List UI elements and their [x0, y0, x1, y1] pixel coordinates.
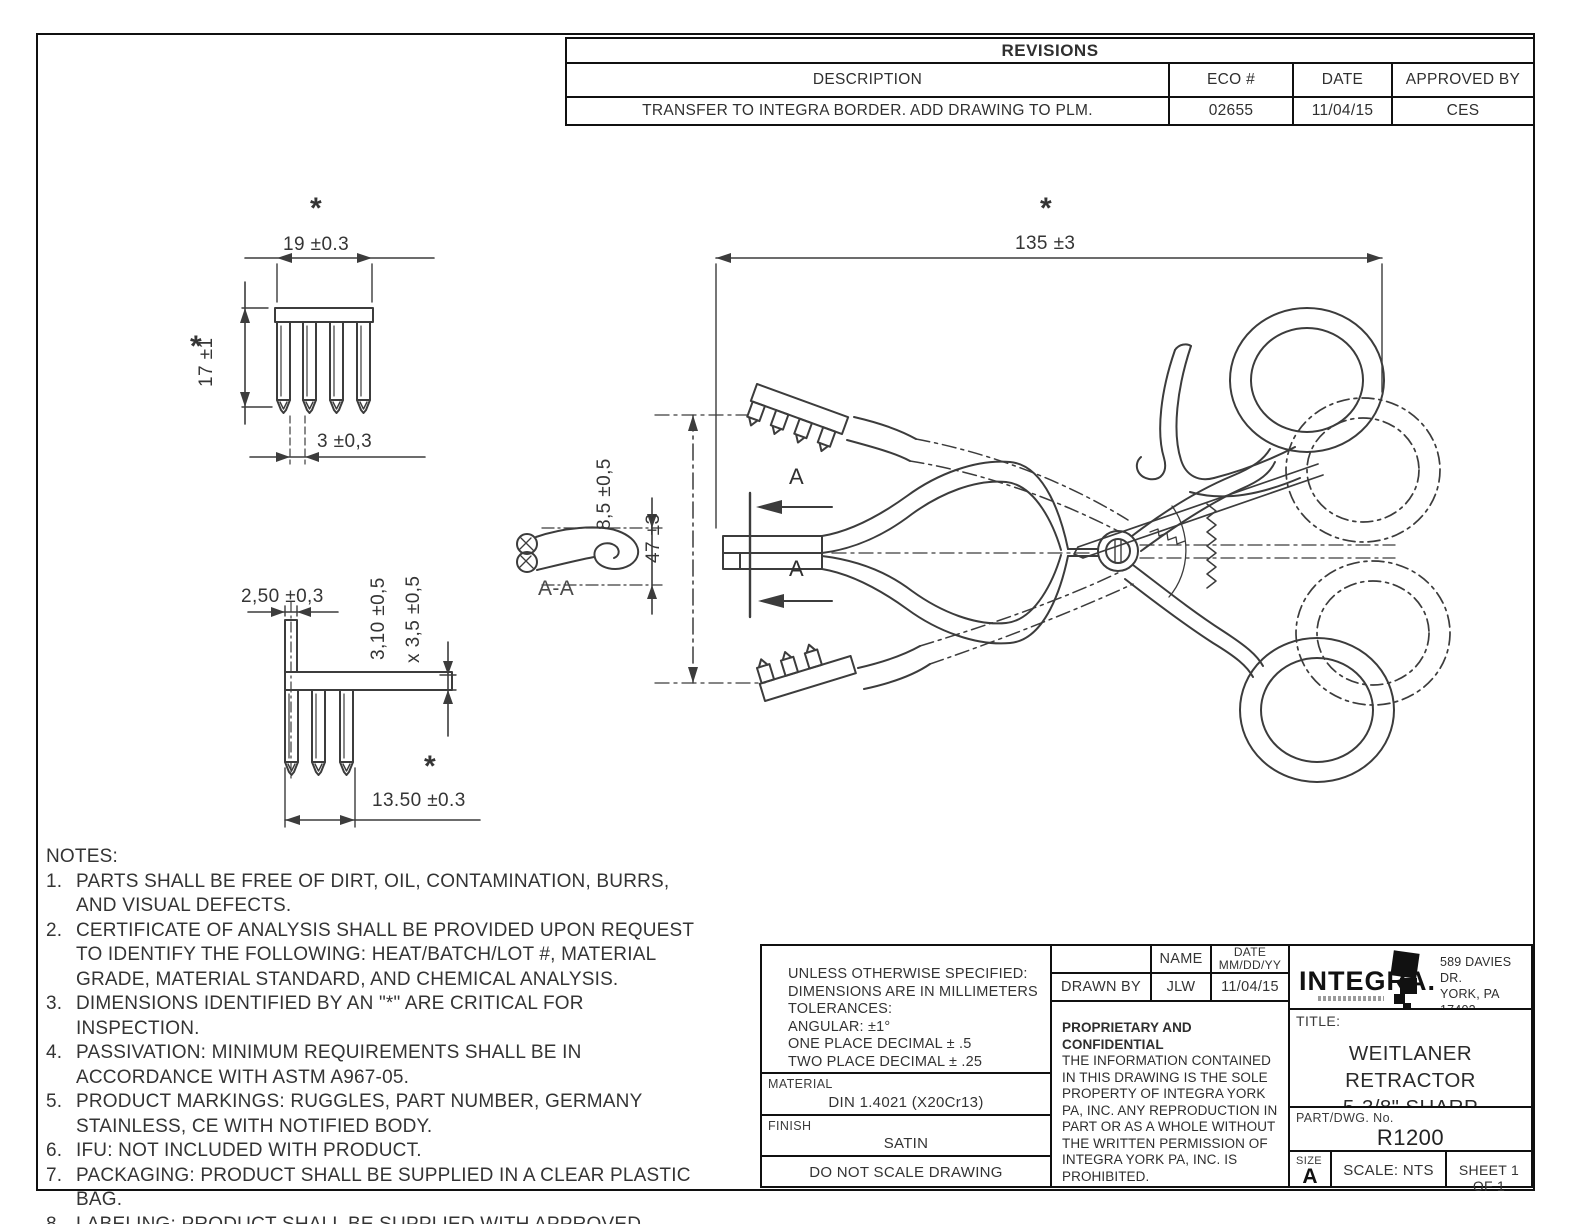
name-header: NAME	[1152, 946, 1212, 972]
note-item: 7.PACKAGING: PRODUCT SHALL BE SUPPLIED I…	[46, 1164, 694, 1213]
revisions-col-description: DESCRIPTION	[567, 64, 1170, 96]
note-item: 5.PRODUCT MARKINGS: RUGGLES, PART NUMBER…	[46, 1090, 694, 1139]
tolerance-line: ANGULAR: ±1°	[788, 1019, 1050, 1037]
dim-label-depth2: x 3,5 ±0,5	[403, 576, 425, 663]
revisions-title: REVISIONS	[567, 39, 1533, 64]
material-value: DIN 1.4021 (X20Cr13)	[762, 1094, 1050, 1111]
dim-label-width-19: 19 ±0.3	[283, 234, 349, 256]
dim-label-depth: 3,10 ±0,5	[368, 577, 390, 660]
dim-label-pitch-3: 3 ±0,3	[317, 431, 372, 453]
material-cell: MATERIAL DIN 1.4021 (X20Cr13)	[760, 1072, 1052, 1116]
tolerance-line: ONE PLACE DECIMAL ± .5	[788, 1036, 1050, 1054]
notes-heading: NOTES:	[46, 845, 694, 870]
revisions-col-approved: APPROVED BY	[1393, 64, 1533, 96]
note-item: 8.LABELING: PRODUCT SHALL BE SUPPLIED WI…	[46, 1213, 694, 1224]
size-value: A	[1290, 1165, 1330, 1189]
material-label: MATERIAL	[768, 1077, 833, 1091]
dim-overall-length	[716, 253, 1382, 528]
tolerance-line: DIMENSIONS ARE IN MILLIMETERS	[788, 984, 1050, 1002]
logo-mark-icon	[1390, 950, 1419, 978]
title-label: TITLE:	[1296, 1013, 1340, 1029]
dim-label-length-135: 135 ±3	[1015, 233, 1075, 255]
finish-value: SATIN	[762, 1135, 1050, 1152]
notes-block: NOTES: 1.PARTS SHALL BE FREE OF DIRT, OI…	[46, 845, 694, 1224]
note-item: 4.PASSIVATION: MINIMUM REQUIREMENTS SHAL…	[46, 1041, 694, 1090]
sheet-cell: SHEET 1 OF 1	[1445, 1150, 1533, 1188]
approvals-header-row: NAME DATE MM/DD/YY	[1050, 944, 1290, 974]
section-view-label: A-A	[538, 578, 574, 600]
tolerance-line: UNLESS OTHERWISE SPECIFIED:	[788, 966, 1050, 984]
critical-asterisk: *	[190, 336, 202, 358]
part-number-value: R1200	[1290, 1125, 1531, 1151]
ratchet-catch	[1137, 344, 1300, 496]
revision-description: TRANSFER TO INTEGRA BORDER. ADD DRAWING …	[567, 98, 1170, 124]
retractor-drawing	[723, 308, 1450, 782]
revisions-col-eco: ECO #	[1170, 64, 1294, 96]
section-cut-label-lower: A	[789, 558, 804, 580]
revision-row: TRANSFER TO INTEGRA BORDER. ADD DRAWING …	[567, 98, 1533, 124]
revision-date: 11/04/15	[1294, 98, 1393, 124]
drawn-by-label: DRAWN BY	[1052, 974, 1152, 1000]
revisions-table: REVISIONS DESCRIPTION ECO # DATE APPROVE…	[565, 37, 1535, 126]
note-item: 3.DIMENSIONS IDENTIFIED BY AN "*" ARE CR…	[46, 992, 694, 1041]
part-number-label: PART/DWG. No.	[1296, 1111, 1394, 1125]
drawing-sheet: 19 ±0.3 * 17 ±1 * 3 ±0,3 2,50 ±0,3 3,10 …	[0, 0, 1584, 1224]
critical-asterisk: *	[310, 198, 322, 220]
rake-tip-lower	[753, 634, 856, 701]
note-item: 2.CERTIFICATE OF ANALYSIS SHALL BE PROVI…	[46, 919, 694, 993]
dim-spread	[655, 415, 765, 683]
proprietary-body: THE INFORMATION CONTAINED IN THIS DRAWIN…	[1062, 1053, 1277, 1184]
tolerance-line: TOLERANCES:	[788, 1001, 1050, 1019]
drawn-by-date: 11/04/15	[1212, 974, 1288, 1000]
critical-asterisk: *	[424, 756, 436, 778]
scale-cell: SCALE: NTS	[1330, 1150, 1447, 1188]
company-logo-cell: INTEGRA. 589 DAVIES DR. YORK, PA 17402 P…	[1288, 944, 1533, 1010]
part-number-cell: PART/DWG. No. R1200	[1288, 1106, 1533, 1152]
drawn-by-name: JLW	[1152, 974, 1212, 1000]
date-header: DATE MM/DD/YY	[1212, 946, 1288, 972]
finger-ring-bottom	[1240, 638, 1394, 782]
proprietary-cell: PROPRIETARY AND CONFIDENTIAL THE INFORMA…	[1050, 1000, 1290, 1188]
dim-label-section-height: 8,5 ±0,5	[594, 458, 616, 530]
finish-label: FINISH	[768, 1119, 811, 1133]
do-not-scale-text: DO NOT SCALE DRAWING	[762, 1164, 1050, 1181]
note-item: 6.IFU: NOT INCLUDED WITH PRODUCT.	[46, 1139, 694, 1164]
finish-cell: FINISH SATIN	[760, 1114, 1052, 1157]
note-item: 1.PARTS SHALL BE FREE OF DIRT, OIL, CONT…	[46, 870, 694, 919]
revisions-col-date: DATE	[1294, 64, 1393, 96]
do-not-scale-cell: DO NOT SCALE DRAWING	[760, 1155, 1052, 1188]
logo-mark-icon	[1400, 978, 1417, 994]
tolerance-block: UNLESS OTHERWISE SPECIFIED: DIMENSIONS A…	[760, 944, 1052, 1074]
revision-eco: 02655	[1170, 98, 1294, 124]
section-cut-label-upper: A	[789, 466, 804, 488]
proprietary-heading: PROPRIETARY AND CONFIDENTIAL	[1062, 1020, 1280, 1053]
dim-label-span: 13.50 ±0.3	[372, 790, 466, 812]
scale-value: SCALE: NTS	[1332, 1162, 1445, 1179]
dim-label-prong-width: 2,50 ±0,3	[241, 586, 324, 608]
drawn-by-row: DRAWN BY JLW 11/04/15	[1050, 972, 1290, 1002]
tolerance-line: TWO PLACE DECIMAL ± .25	[788, 1054, 1050, 1072]
rake-tip-upper	[743, 384, 848, 456]
finger-ring-top	[1230, 308, 1384, 452]
section-cut-line	[750, 493, 832, 617]
title-cell: TITLE: WEITLANER RETRACTOR 5-3/8" SHARP	[1288, 1008, 1533, 1108]
dim-label-spread-47: 47 ±3	[643, 514, 665, 563]
sheet-value: SHEET 1 OF 1	[1447, 1162, 1531, 1194]
critical-asterisk: *	[1040, 198, 1052, 220]
size-cell: SIZE A	[1288, 1150, 1332, 1188]
revision-approved: CES	[1393, 98, 1533, 124]
logo-tagline	[1318, 996, 1384, 1001]
